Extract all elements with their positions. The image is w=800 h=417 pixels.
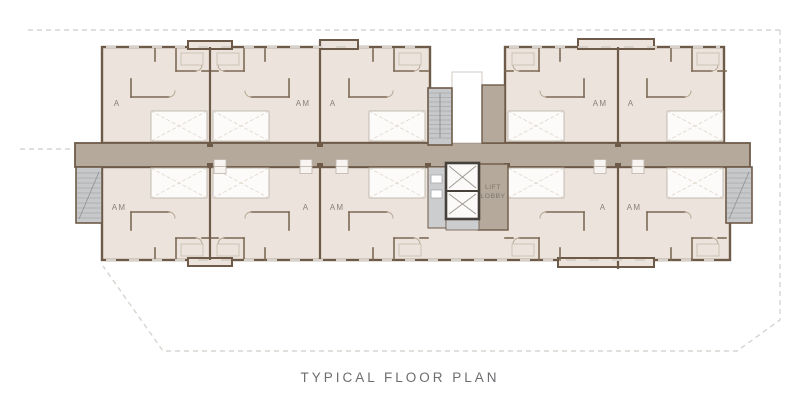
unit-label-top-3: A (330, 99, 337, 108)
unit-label-top-5: A (628, 99, 635, 108)
drawing-title: TYPICAL FLOOR PLAN (300, 370, 499, 385)
unit-label-top-4: AM (593, 99, 607, 108)
floor-plan-drawing: A AM A AM A AM A AM A AM LIFT LOBBY TYPI… (0, 0, 800, 417)
central-corridor (75, 143, 750, 167)
unit-label-bottom-4: A (600, 203, 607, 212)
unit-label-top-2: AM (296, 99, 310, 108)
unit-label-top-1: A (114, 99, 121, 108)
core-vestibule (482, 85, 505, 143)
unit-label-bottom-2: A (303, 203, 310, 212)
lift-lobby-label-line2: LOBBY (480, 193, 505, 200)
core-duct (446, 219, 479, 230)
unit-label-bottom-5: AM (627, 203, 641, 212)
core-shaft (452, 72, 482, 143)
unit-label-bottom-3: AM (330, 203, 344, 212)
floor-plan-page: A AM A AM A AM A AM A AM LIFT LOBBY TYPI… (0, 0, 800, 417)
lift-lobby-label-line1: LIFT (485, 184, 501, 191)
unit-label-bottom-1: AM (112, 203, 126, 212)
